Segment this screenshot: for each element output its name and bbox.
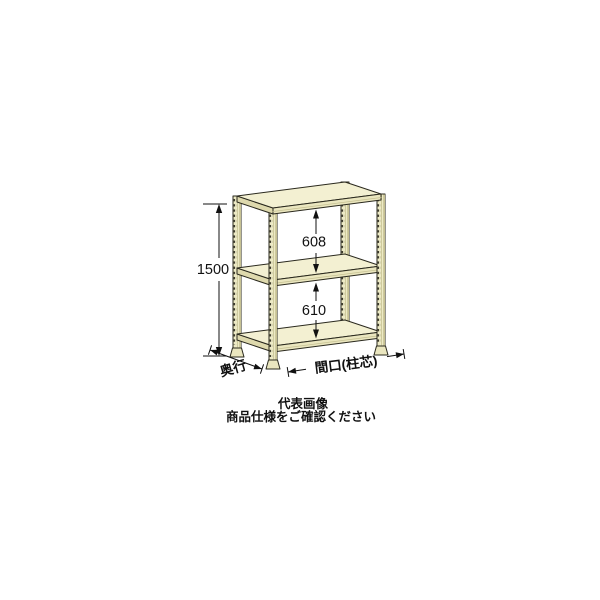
caption: 代表画像 商品仕様をご確認ください <box>226 396 376 424</box>
height-arrow-up-icon <box>216 204 222 213</box>
bottom-shelf <box>237 320 381 352</box>
upper-gap-arrow-up-icon <box>313 210 319 219</box>
depth-arrow-right-icon <box>254 364 263 370</box>
top-shelf <box>237 182 381 214</box>
caption-line-2: 商品仕様をご確認ください <box>226 409 376 424</box>
back-left-foot <box>230 348 244 357</box>
width-dimension-label: 間口(柱芯) <box>314 352 378 376</box>
back-left-post <box>230 196 244 357</box>
rack-drawing <box>230 182 388 369</box>
product-image-page: 1500 608 610 奥行 間口(柱芯) <box>0 0 600 600</box>
height-dimension: 1500 <box>197 204 229 356</box>
lower-gap-dimension-label: 610 <box>302 303 326 319</box>
upper-gap-dimension-label: 608 <box>302 235 326 251</box>
lower-gap-arrow-up-icon <box>313 283 319 292</box>
width-arrow-left-icon <box>288 368 296 374</box>
product-illustration: 1500 608 610 奥行 間口(柱芯) <box>0 0 600 600</box>
width-arrow-right-icon <box>396 352 404 358</box>
caption-line-1: 代表画像 <box>277 396 329 411</box>
middle-shelf <box>237 254 381 286</box>
dimension-annotations: 1500 608 610 奥行 間口(柱芯) <box>197 204 405 379</box>
front-left-foot <box>266 360 280 369</box>
depth-dimension-label: 奥行 <box>218 356 249 379</box>
depth-arrow-left-icon <box>210 350 219 356</box>
height-dimension-label: 1500 <box>197 262 229 278</box>
